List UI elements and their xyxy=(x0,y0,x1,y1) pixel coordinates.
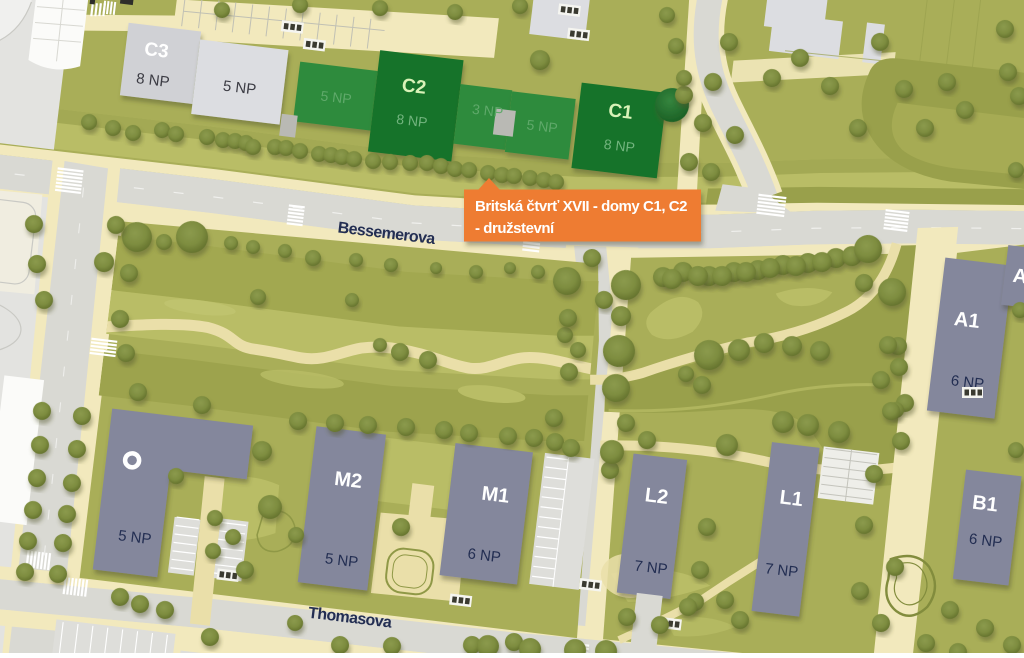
svg-text:Britská čtvrť XVII - domy C1,: Britská čtvrť XVII - domy C1, C2 xyxy=(475,198,687,215)
svg-text:- družstevní: - družstevní xyxy=(475,220,555,237)
svg-text:C1: C1 xyxy=(607,100,634,124)
svg-text:M2: M2 xyxy=(333,468,363,493)
svg-text:M1: M1 xyxy=(480,483,510,508)
svg-text:A1: A1 xyxy=(953,308,981,333)
svg-text:C2: C2 xyxy=(401,75,428,99)
svg-text:B1: B1 xyxy=(971,492,999,517)
svg-text:C3: C3 xyxy=(143,39,170,63)
svg-text:L2: L2 xyxy=(644,484,670,509)
svg-text:L1: L1 xyxy=(778,486,804,511)
svg-text:A2: A2 xyxy=(1012,265,1024,290)
